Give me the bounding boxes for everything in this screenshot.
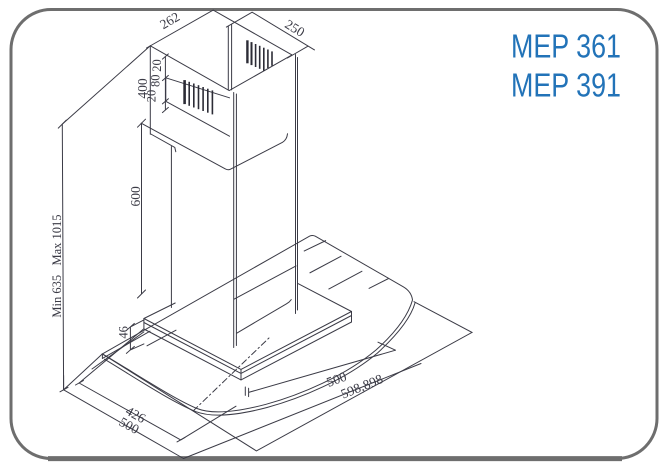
- svg-text:600: 600: [128, 186, 143, 207]
- svg-text:262: 262: [157, 9, 182, 32]
- svg-text:20: 20: [145, 90, 159, 103]
- svg-text:20: 20: [150, 59, 164, 72]
- svg-text:250: 250: [282, 16, 307, 39]
- svg-text:MEP 361: MEP 361: [511, 28, 621, 65]
- svg-text:MEP 391: MEP 391: [511, 67, 621, 104]
- svg-text:Min 635 Max 1015: Min 635 Max 1015: [50, 214, 64, 317]
- svg-text:80: 80: [149, 75, 163, 88]
- svg-text:46: 46: [117, 326, 131, 339]
